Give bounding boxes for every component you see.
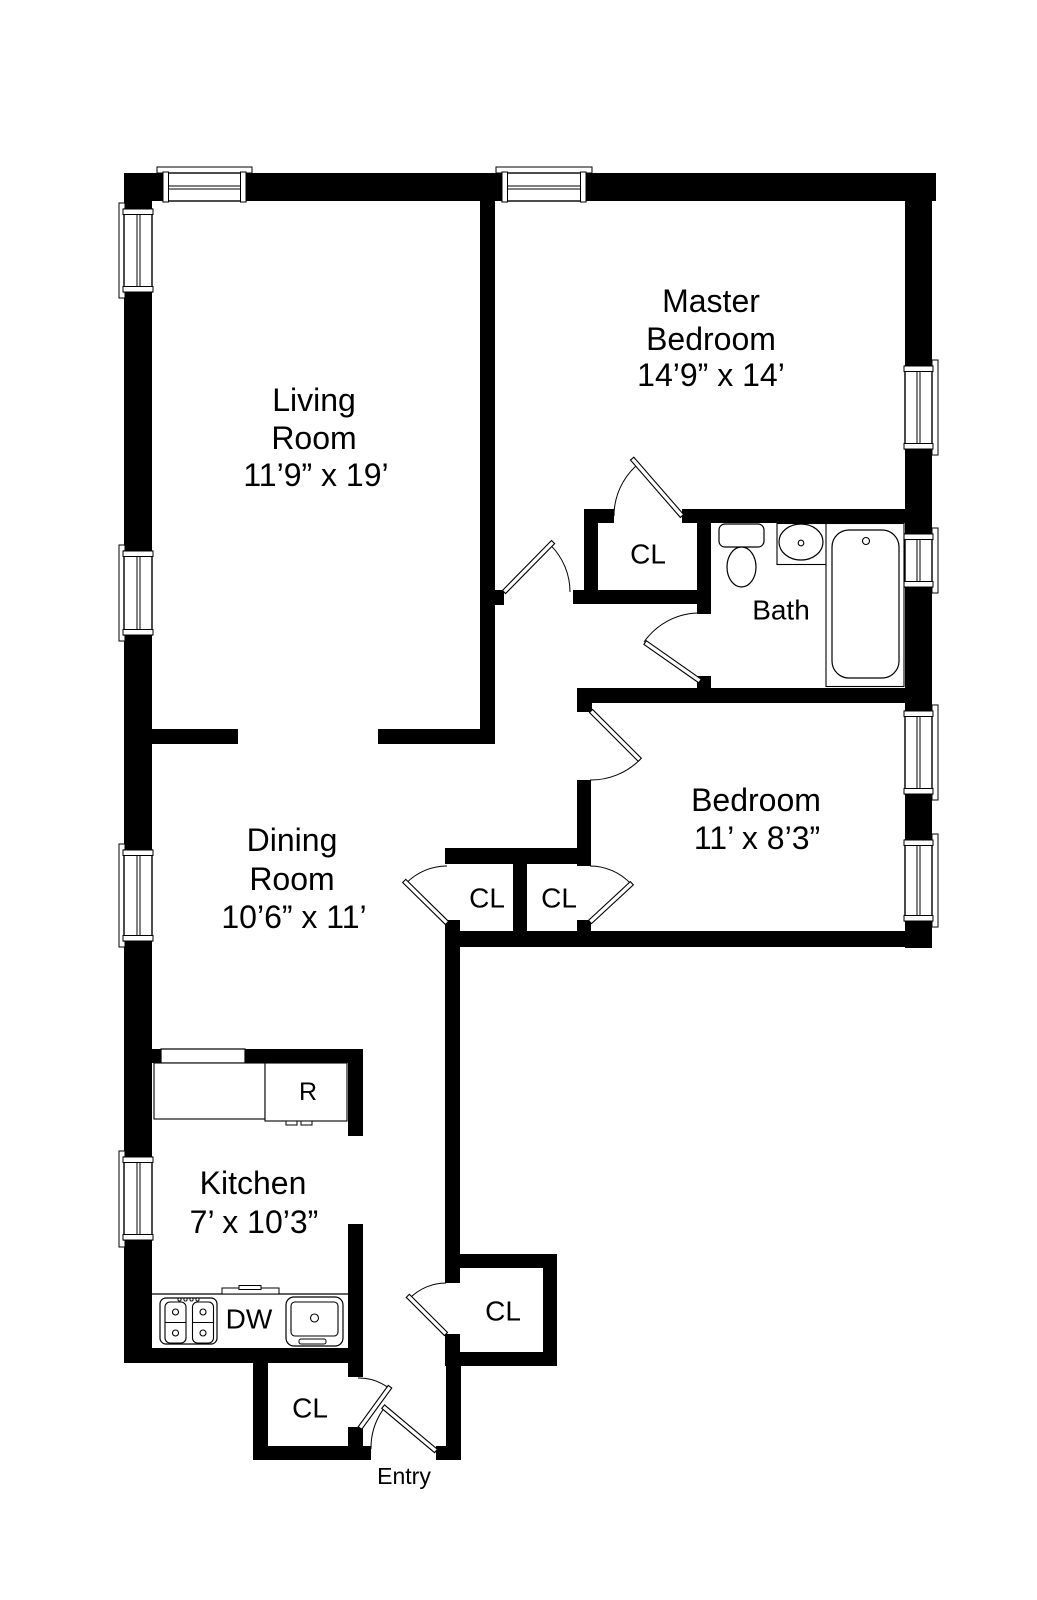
- svg-text:CL: CL: [469, 883, 505, 914]
- svg-text:Living: Living: [272, 382, 356, 418]
- svg-text:Room: Room: [271, 420, 356, 456]
- svg-text:R: R: [299, 1078, 317, 1106]
- svg-text:CL: CL: [485, 1296, 521, 1327]
- svg-text:10’6” x 11’: 10’6” x 11’: [221, 899, 366, 935]
- svg-text:Bedroom: Bedroom: [691, 782, 821, 818]
- svg-text:Entry: Entry: [377, 1463, 431, 1489]
- svg-text:CL: CL: [541, 883, 577, 914]
- svg-text:7’ x 10’3”: 7’ x 10’3”: [190, 1204, 319, 1240]
- svg-text:Dining: Dining: [247, 822, 338, 858]
- svg-text:11’ x 8’3”: 11’ x 8’3”: [694, 820, 820, 856]
- svg-text:Master: Master: [662, 283, 760, 319]
- svg-text:CL: CL: [292, 1393, 328, 1424]
- svg-text:Room: Room: [249, 861, 334, 897]
- svg-text:CL: CL: [630, 539, 666, 570]
- svg-text:Bedroom: Bedroom: [646, 321, 776, 357]
- svg-text:Kitchen: Kitchen: [200, 1165, 307, 1201]
- svg-text:14’9” x 14’: 14’9” x 14’: [637, 357, 785, 393]
- svg-text:DW: DW: [226, 1304, 273, 1335]
- svg-text:Bath: Bath: [752, 595, 810, 626]
- svg-text:11’9” x 19’: 11’9” x 19’: [243, 457, 388, 493]
